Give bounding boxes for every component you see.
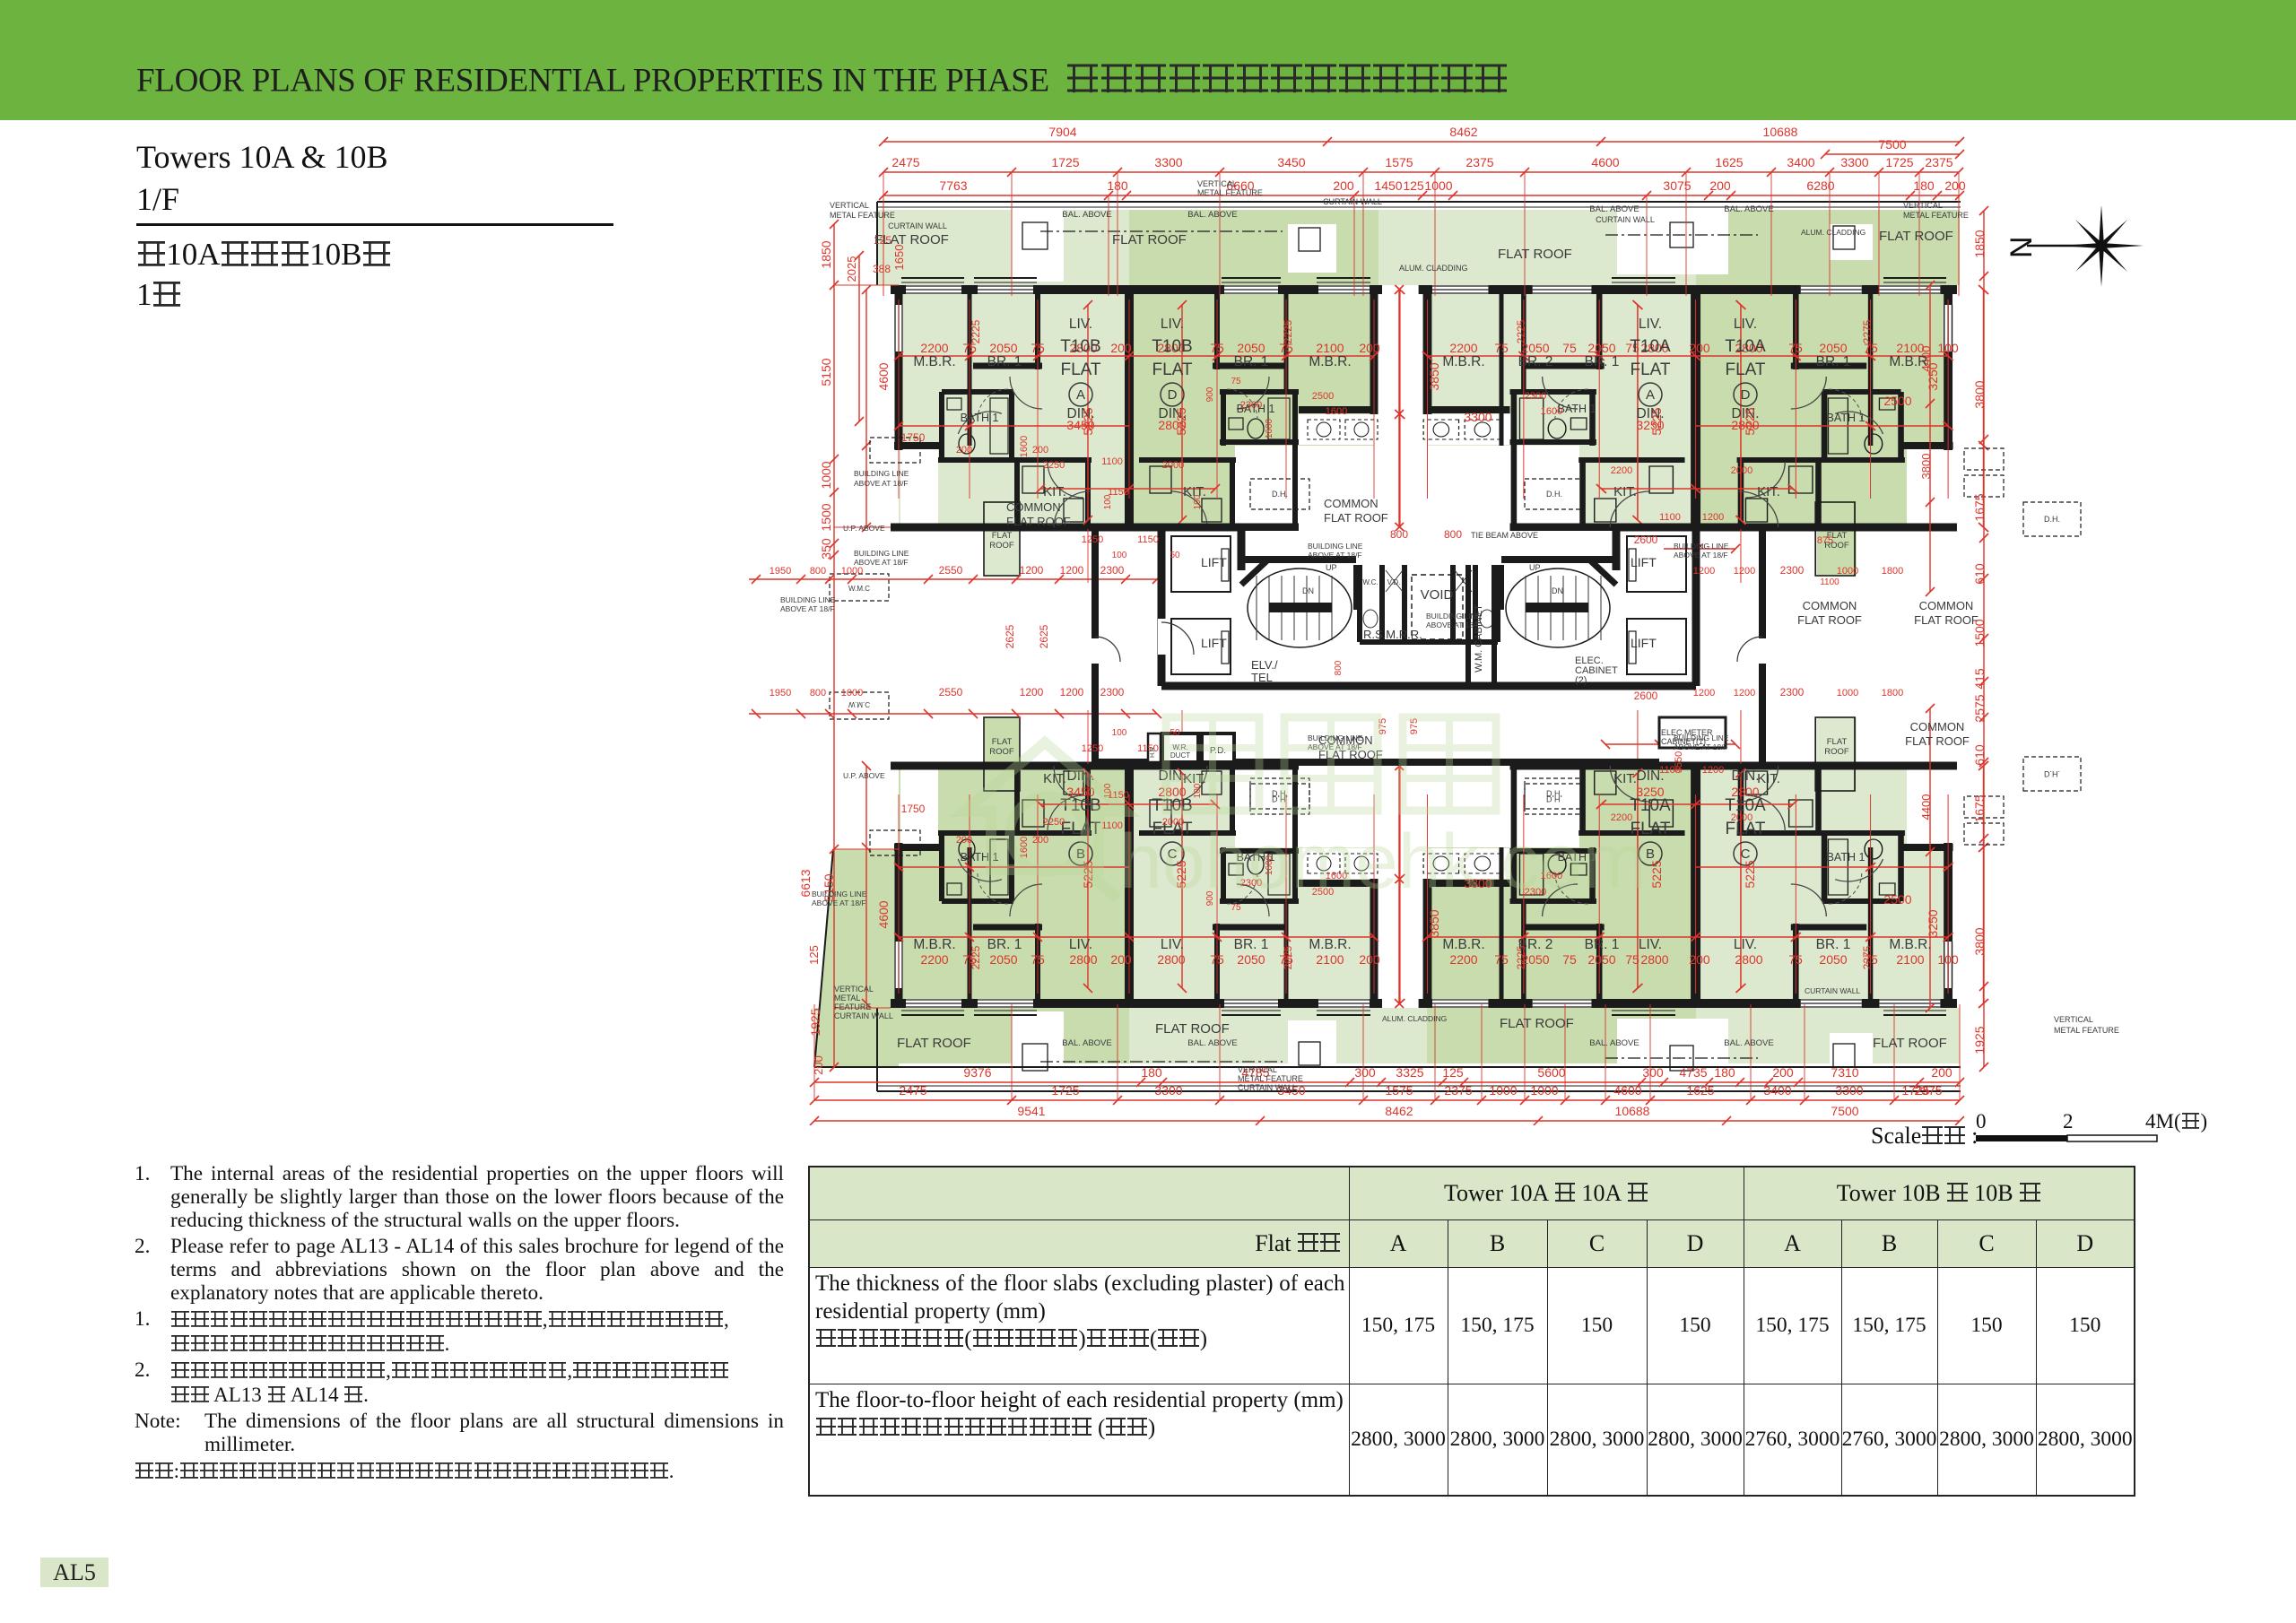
svg-text:KIT.: KIT.: [1757, 484, 1780, 499]
svg-text:2275: 2275: [1861, 945, 1874, 969]
svg-text:1200: 1200: [1734, 688, 1755, 699]
svg-text:ABOVE AT 18/F: ABOVE AT 18/F: [1674, 551, 1728, 560]
svg-text:2800: 2800: [1640, 952, 1668, 967]
svg-text:1100: 1100: [1101, 456, 1123, 467]
svg-text:1575: 1575: [1385, 1083, 1413, 1098]
svg-text:1600: 1600: [1265, 418, 1274, 438]
svg-text:1000: 1000: [841, 566, 863, 577]
svg-text:1200: 1200: [1020, 686, 1044, 699]
svg-text:1200: 1200: [1693, 688, 1715, 699]
svg-text:1950: 1950: [770, 688, 791, 699]
svg-text:1200: 1200: [1060, 564, 1084, 577]
svg-text:3250: 3250: [1926, 909, 1940, 937]
svg-text:1200: 1200: [1020, 564, 1044, 577]
svg-text:2625: 2625: [1038, 624, 1050, 648]
svg-text:C: C: [1741, 846, 1751, 862]
svg-text:V.D.: V.D.: [1387, 578, 1401, 586]
svg-text:800: 800: [810, 688, 826, 699]
svg-text:1625: 1625: [1715, 155, 1743, 169]
svg-text:2800: 2800: [1731, 785, 1759, 799]
svg-text:5225: 5225: [1081, 407, 1095, 435]
svg-text:FLAT: FLAT: [1827, 737, 1848, 747]
svg-text:200: 200: [1944, 178, 1966, 193]
svg-text:BAL. ABOVE: BAL. ABOVE: [1187, 210, 1237, 220]
svg-text:DN: DN: [1302, 586, 1314, 595]
svg-text:LIV.: LIV.: [1639, 937, 1662, 952]
svg-text:2200: 2200: [1449, 952, 1477, 967]
svg-text:7500: 7500: [1878, 137, 1906, 152]
svg-text:1200: 1200: [1702, 512, 1724, 523]
svg-text:DUCT: DUCT: [1170, 751, 1190, 759]
svg-text:ALUM. CLADDING: ALUM. CLADDING: [1801, 228, 1865, 237]
svg-text:T10B: T10B: [1060, 337, 1100, 356]
svg-text:CURTAIN WALL: CURTAIN WALL: [1323, 197, 1382, 206]
svg-text:ROOF: ROOF: [989, 747, 1014, 757]
svg-text:2300: 2300: [1100, 564, 1125, 577]
svg-text:200: 200: [1110, 952, 1132, 967]
svg-text:D: D: [1741, 387, 1751, 403]
svg-text:5225: 5225: [1649, 407, 1664, 435]
svg-text:2475: 2475: [899, 1083, 926, 1098]
svg-text:9541: 9541: [1017, 1104, 1045, 1118]
svg-text:1000: 1000: [1530, 1083, 1558, 1098]
svg-text:1750: 1750: [901, 431, 926, 444]
svg-text:200: 200: [1689, 952, 1710, 967]
svg-text:3800: 3800: [1919, 454, 1933, 480]
svg-text:METAL FEATURE: METAL FEATURE: [1197, 188, 1263, 197]
svg-text:ROOF: ROOF: [1824, 747, 1849, 757]
svg-text:BR. 1: BR. 1: [987, 937, 1022, 952]
svg-text:1625: 1625: [1686, 1083, 1714, 1098]
svg-text:6280: 6280: [1806, 178, 1834, 193]
svg-text:M.B.R.: M.B.R.: [1442, 354, 1484, 369]
svg-text:BR. 1: BR. 1: [1234, 937, 1269, 952]
svg-text:T10A: T10A: [1630, 337, 1671, 356]
svg-text:2300: 2300: [1525, 391, 1546, 402]
svg-text:100: 100: [1937, 952, 1959, 967]
svg-text:1200: 1200: [1702, 765, 1724, 776]
svg-text:2500: 2500: [1883, 892, 1911, 907]
svg-text:3800: 3800: [1972, 927, 1987, 955]
svg-text:2500: 2500: [1883, 394, 1911, 408]
svg-text:3400: 3400: [1763, 1083, 1791, 1098]
svg-text:2800: 2800: [1069, 952, 1097, 967]
svg-text:800: 800: [810, 566, 826, 577]
svg-text:H.R.: H.R.: [1150, 745, 1156, 758]
svg-text:2600: 2600: [1634, 534, 1658, 546]
svg-text:2300: 2300: [1780, 564, 1805, 577]
svg-text:125: 125: [807, 945, 821, 965]
svg-text:180: 180: [1141, 1065, 1162, 1080]
svg-text:1925: 1925: [808, 1008, 822, 1036]
svg-text:VERTICAL: VERTICAL: [1238, 1065, 1277, 1074]
svg-text:3325: 3325: [1396, 1065, 1423, 1080]
svg-text:2800: 2800: [1735, 952, 1762, 967]
svg-text:FLAT ROOF: FLAT ROOF: [1797, 613, 1862, 627]
svg-text:2100: 2100: [1896, 341, 1924, 355]
svg-text:LIFT: LIFT: [1631, 555, 1657, 569]
svg-text:FLAT ROOF: FLAT ROOF: [1155, 1021, 1230, 1037]
svg-text:BUILDING LINE: BUILDING LINE: [1426, 612, 1482, 621]
svg-text:ABOVE AT 18/F: ABOVE AT 18/F: [1426, 621, 1481, 629]
svg-text:COMMON: COMMON: [1919, 599, 1974, 612]
svg-text:BAL. ABOVE: BAL. ABOVE: [1724, 1038, 1773, 1048]
svg-text:ABOVE AT 18/F: ABOVE AT 18/F: [812, 898, 866, 907]
svg-text:VERTICAL: VERTICAL: [830, 201, 869, 210]
svg-text:KIT.: KIT.: [1043, 484, 1066, 499]
svg-text:4600: 4600: [876, 362, 891, 390]
svg-text:75: 75: [1210, 952, 1224, 967]
svg-text:ELV./: ELV./: [1251, 658, 1278, 672]
svg-text:BR. 1: BR. 1: [987, 354, 1022, 369]
svg-text:388: 388: [873, 263, 891, 275]
svg-text:LIV.: LIV.: [1639, 317, 1662, 332]
svg-text:9376: 9376: [963, 1065, 991, 1080]
svg-text:200: 200: [812, 1055, 825, 1075]
svg-text:T10A: T10A: [1725, 337, 1766, 356]
svg-text:FLAT: FLAT: [1725, 360, 1765, 379]
svg-text:2375: 2375: [1465, 155, 1493, 169]
svg-text:BR. 1: BR. 1: [1234, 354, 1269, 369]
svg-text:2600: 2600: [1634, 690, 1658, 702]
svg-text:BR. 2: BR. 2: [1518, 354, 1553, 369]
svg-text:2225: 2225: [1515, 945, 1527, 969]
svg-text:BAL. ABOVE: BAL. ABOVE: [1187, 1038, 1237, 1048]
svg-text:100: 100: [1193, 494, 1203, 509]
svg-text:2225: 2225: [1515, 319, 1527, 343]
svg-text:1100: 1100: [1659, 512, 1681, 523]
svg-text:2300: 2300: [1100, 686, 1125, 699]
svg-text:2375: 2375: [1914, 1083, 1942, 1098]
svg-text:1250: 1250: [1082, 743, 1103, 754]
svg-text:FLAT ROOF: FLAT ROOF: [1873, 1036, 1947, 1051]
svg-text:200: 200: [1709, 178, 1731, 193]
svg-text:180: 180: [1714, 1065, 1735, 1080]
svg-text:FLAT ROOF: FLAT ROOF: [1498, 247, 1572, 262]
svg-text:2500: 2500: [1312, 391, 1334, 402]
svg-text:5150: 5150: [819, 358, 833, 386]
svg-text:3400: 3400: [1787, 155, 1814, 169]
svg-text:FLAT ROOF: FLAT ROOF: [874, 232, 949, 247]
svg-text:2300: 2300: [1780, 686, 1805, 699]
svg-text:300: 300: [1354, 1065, 1376, 1080]
svg-text:B: B: [1646, 846, 1655, 862]
svg-text:FLAT: FLAT: [1060, 360, 1100, 379]
svg-text:LIV.: LIV.: [1069, 317, 1092, 332]
svg-text:100: 100: [1937, 341, 1959, 355]
svg-text:6613: 6613: [798, 869, 813, 897]
svg-text:2025: 2025: [845, 256, 858, 282]
svg-text:COMMON: COMMON: [1910, 720, 1965, 733]
svg-text:2225: 2225: [970, 945, 982, 969]
svg-text:5600: 5600: [1537, 1065, 1565, 1080]
svg-text:5225: 5225: [1743, 407, 1757, 435]
svg-text:2225: 2225: [1282, 319, 1294, 343]
svg-text:100: 100: [1193, 783, 1203, 798]
svg-text:M.B.R.: M.B.R.: [913, 354, 955, 369]
svg-text:KIT.: KIT.: [1757, 771, 1780, 786]
svg-text:BAL. ABOVE: BAL. ABOVE: [1724, 204, 1773, 214]
svg-text:LIV.: LIV.: [1161, 317, 1184, 332]
svg-text:FLAT ROOF: FLAT ROOF: [1914, 613, 1979, 627]
svg-text:610: 610: [1972, 563, 1987, 585]
svg-text:VERTICAL: VERTICAL: [834, 985, 874, 994]
svg-text:ABOVE AT 18/F: ABOVE AT 18/F: [780, 604, 835, 613]
svg-text:LIV.: LIV.: [1069, 937, 1092, 952]
svg-text:75: 75: [1562, 341, 1577, 355]
svg-text:125: 125: [1442, 1065, 1464, 1080]
svg-text:2050: 2050: [1237, 952, 1265, 967]
svg-text:3450: 3450: [1277, 155, 1305, 169]
svg-text:415: 415: [1972, 668, 1987, 690]
svg-text:U.P. ABOVE: U.P. ABOVE: [843, 771, 885, 780]
svg-text:M.B.R.: M.B.R.: [1309, 937, 1351, 952]
svg-text:FLAT ROOF: FLAT ROOF: [897, 1036, 971, 1051]
svg-text:T10B: T10B: [1152, 337, 1192, 356]
svg-text:BAL. ABOVE: BAL. ABOVE: [1062, 1038, 1111, 1048]
svg-text:3300: 3300: [1835, 1083, 1863, 1098]
svg-text:1250: 1250: [1082, 534, 1103, 545]
svg-text:CURTAIN WALL: CURTAIN WALL: [1805, 986, 1860, 995]
svg-text:200: 200: [1359, 952, 1380, 967]
svg-text:1650: 1650: [892, 245, 906, 271]
svg-text:LIFT: LIFT: [1201, 555, 1227, 569]
svg-text:CURTAIN WALL: CURTAIN WALL: [888, 221, 947, 230]
svg-text:2050: 2050: [1587, 341, 1615, 355]
svg-text:5225: 5225: [1743, 860, 1757, 888]
svg-text:KIT.: KIT.: [1043, 771, 1066, 786]
svg-text:800: 800: [1390, 528, 1408, 541]
svg-text:BUILDING LINE: BUILDING LINE: [1308, 542, 1363, 551]
svg-text:200: 200: [1359, 341, 1380, 355]
svg-text:2550: 2550: [939, 686, 963, 699]
svg-text:2800: 2800: [1157, 952, 1185, 967]
svg-text:2625: 2625: [1004, 624, 1016, 648]
svg-text:1725: 1725: [1051, 155, 1079, 169]
svg-text:100: 100: [1112, 728, 1127, 738]
svg-text:3300: 3300: [1840, 155, 1868, 169]
svg-text:M.B.R.: M.B.R.: [1889, 937, 1931, 952]
svg-text:1500: 1500: [819, 503, 833, 531]
svg-text:1450: 1450: [1374, 178, 1402, 193]
svg-text:BUILDING LINE: BUILDING LINE: [812, 890, 867, 898]
svg-text:5225: 5225: [1174, 407, 1188, 435]
svg-text:BUILDING LINE: BUILDING LINE: [854, 549, 909, 558]
svg-text:D.H.: D.H.: [1546, 789, 1562, 798]
svg-text:2100: 2100: [1896, 952, 1924, 967]
svg-text:A: A: [1076, 387, 1085, 403]
svg-text:COMMON: COMMON: [1803, 599, 1857, 612]
svg-text:BATH 1: BATH 1: [1827, 851, 1865, 864]
svg-text:2550: 2550: [939, 564, 963, 577]
svg-text:200: 200: [956, 445, 972, 456]
svg-text:VERTICAL: VERTICAL: [1903, 201, 1943, 210]
svg-text:D: D: [1168, 387, 1178, 403]
svg-text:2050: 2050: [1587, 952, 1615, 967]
svg-text:BUILDING LINE: BUILDING LINE: [1308, 733, 1363, 742]
svg-text:75: 75: [1788, 952, 1803, 967]
svg-text:BUILDING LINE: BUILDING LINE: [854, 469, 909, 478]
svg-text:125: 125: [1403, 178, 1424, 193]
svg-text:50: 50: [1170, 728, 1180, 738]
svg-text:2200: 2200: [920, 952, 948, 967]
svg-text:1600: 1600: [1326, 406, 1347, 417]
svg-text:200: 200: [1110, 341, 1132, 355]
svg-text:A: A: [1646, 387, 1655, 403]
svg-text:METAL FEATURE: METAL FEATURE: [830, 211, 895, 220]
svg-text:300: 300: [1642, 1065, 1664, 1080]
svg-text:BUILDING LINE: BUILDING LINE: [1674, 542, 1729, 551]
svg-text:2225: 2225: [970, 319, 982, 343]
svg-text:2050: 2050: [989, 952, 1017, 967]
svg-text:1150: 1150: [1137, 534, 1159, 545]
svg-text:KIT.: KIT.: [1613, 771, 1637, 786]
svg-text:KIT.: KIT.: [1613, 484, 1637, 499]
svg-text:7310: 7310: [1831, 1065, 1858, 1080]
svg-text:2100: 2100: [1316, 952, 1344, 967]
svg-text:1800: 1800: [1882, 688, 1903, 699]
svg-text:BAL. ABOVE: BAL. ABOVE: [1589, 1038, 1639, 1048]
svg-text:1675: 1675: [1972, 794, 1987, 822]
svg-text:800: 800: [1444, 528, 1462, 541]
svg-text:75: 75: [1562, 952, 1577, 967]
svg-text:2050: 2050: [1819, 341, 1847, 355]
svg-text:1200: 1200: [1693, 566, 1715, 577]
svg-text:3075: 3075: [1663, 178, 1691, 193]
svg-text:2200: 2200: [1449, 341, 1477, 355]
svg-text:3850: 3850: [1427, 362, 1441, 390]
svg-text:CURTAIN WALL: CURTAIN WALL: [1596, 215, 1655, 224]
svg-text:METAL FEATURE: METAL FEATURE: [1238, 1074, 1303, 1083]
svg-text:FLAT: FLAT: [1152, 360, 1192, 379]
svg-text:BR. 1: BR. 1: [1585, 354, 1620, 369]
svg-text:75: 75: [1788, 341, 1803, 355]
svg-text:7763: 7763: [939, 178, 967, 193]
svg-text:200: 200: [1333, 178, 1354, 193]
svg-text:DN: DN: [1552, 586, 1563, 595]
svg-text:1725: 1725: [1885, 155, 1913, 169]
svg-text:50: 50: [1170, 551, 1180, 560]
svg-text:2275: 2275: [1861, 319, 1874, 343]
svg-text:3850: 3850: [1427, 909, 1441, 937]
svg-text:METAL FEATURE: METAL FEATURE: [2054, 1026, 2119, 1035]
svg-text:1850: 1850: [819, 240, 833, 268]
svg-text:200: 200: [1931, 1065, 1952, 1080]
svg-text:2250: 2250: [1043, 817, 1065, 828]
svg-text:COMMON: COMMON: [1324, 497, 1378, 510]
svg-text:7500: 7500: [1831, 1104, 1858, 1118]
svg-text:10688: 10688: [1615, 1104, 1650, 1118]
svg-text:100: 100: [1103, 494, 1113, 509]
svg-text:DIN.: DIN.: [1732, 768, 1760, 784]
svg-text:75: 75: [1494, 952, 1509, 967]
svg-text:3250: 3250: [1926, 362, 1940, 390]
svg-text:TIE BEAM ABOVE: TIE BEAM ABOVE: [1471, 531, 1538, 540]
svg-text:2225: 2225: [1282, 945, 1294, 969]
svg-text:1000: 1000: [1837, 688, 1858, 699]
svg-text:ABOVE AT 18/F: ABOVE AT 18/F: [1674, 742, 1728, 751]
svg-text:M.B.R.: M.B.R.: [1309, 354, 1351, 369]
svg-text:1100: 1100: [1820, 577, 1839, 587]
svg-text:METAL FEATURE: METAL FEATURE: [1903, 211, 1969, 220]
svg-text:1000: 1000: [819, 461, 833, 489]
svg-text:TEL: TEL: [1251, 671, 1273, 684]
svg-text:LIFT: LIFT: [1631, 636, 1657, 650]
svg-text:610: 610: [1972, 744, 1987, 766]
svg-text:1200: 1200: [1734, 566, 1755, 577]
svg-text:BATH 1: BATH 1: [1558, 403, 1596, 415]
svg-text:1850: 1850: [1972, 230, 1987, 257]
svg-text:5225: 5225: [1649, 860, 1664, 888]
svg-text:2250: 2250: [1043, 460, 1065, 471]
svg-text:75: 75: [1625, 952, 1639, 967]
svg-text:7904: 7904: [1048, 126, 1076, 139]
svg-text:4400: 4400: [1919, 794, 1933, 820]
svg-text:UP: UP: [1529, 563, 1541, 572]
svg-text:ALUM. CLADDING: ALUM. CLADDING: [1399, 264, 1468, 273]
svg-text:2050: 2050: [1819, 952, 1847, 967]
svg-text:3300: 3300: [1464, 410, 1492, 424]
svg-text:2000: 2000: [1731, 465, 1752, 476]
svg-text:FLAT ROOF: FLAT ROOF: [1879, 229, 1953, 244]
svg-text:2000: 2000: [1162, 460, 1184, 471]
svg-text:UP: UP: [1326, 563, 1337, 572]
svg-text:VOID: VOID: [1421, 587, 1454, 603]
svg-text:8462: 8462: [1449, 126, 1477, 139]
svg-text:200: 200: [956, 835, 972, 846]
svg-text:75: 75: [1494, 341, 1509, 355]
svg-text:FLAT ROOF: FLAT ROOF: [1006, 515, 1071, 528]
svg-text:U.P. ABOVE: U.P. ABOVE: [843, 524, 885, 533]
svg-text:1675: 1675: [1972, 493, 1987, 521]
svg-text:1600: 1600: [1019, 436, 1030, 457]
svg-text:VERTICAL: VERTICAL: [1197, 179, 1237, 188]
svg-text:4600: 4600: [1591, 155, 1619, 169]
svg-text:FLAT ROOF: FLAT ROOF: [1112, 232, 1187, 247]
svg-text:1000: 1000: [1837, 566, 1858, 577]
svg-text:ROOF: ROOF: [989, 541, 1014, 551]
svg-text:2375: 2375: [1925, 155, 1952, 169]
svg-text:LIV.: LIV.: [1734, 937, 1757, 952]
svg-text:1000: 1000: [841, 688, 863, 699]
svg-text:LIFT: LIFT: [1201, 636, 1227, 650]
svg-text:3250: 3250: [1636, 785, 1664, 799]
svg-text:2575: 2575: [1972, 694, 1987, 722]
svg-text:75: 75: [1231, 377, 1241, 386]
svg-text:2200: 2200: [1611, 465, 1632, 476]
svg-text:1800: 1800: [1882, 566, 1903, 577]
svg-text:2050: 2050: [989, 341, 1017, 355]
svg-text:1575: 1575: [1385, 155, 1413, 169]
svg-text:1750: 1750: [901, 803, 926, 815]
svg-text:1950: 1950: [770, 566, 791, 577]
svg-text:2475: 2475: [891, 155, 919, 169]
svg-text:COMMON: COMMON: [1006, 500, 1061, 514]
svg-text:BR. 1: BR. 1: [1816, 354, 1851, 369]
svg-text:3800: 3800: [1972, 380, 1987, 408]
svg-text:FEATURE: FEATURE: [834, 1002, 871, 1011]
svg-text:BR. 1: BR. 1: [1816, 937, 1851, 952]
svg-text:FLAT ROOF: FLAT ROOF: [1500, 1016, 1574, 1031]
svg-text:FLAT ROOF: FLAT ROOF: [1324, 511, 1388, 525]
svg-text:8462: 8462: [1385, 1104, 1413, 1118]
svg-text:875: 875: [1817, 535, 1833, 546]
svg-text:VERTICAL: VERTICAL: [2054, 1015, 2093, 1024]
svg-text:M.B.R.: M.B.R.: [913, 937, 955, 952]
svg-text:75: 75: [1031, 341, 1045, 355]
svg-text:BR. 1: BR. 1: [1585, 937, 1620, 952]
svg-text:200: 200: [1032, 835, 1048, 846]
